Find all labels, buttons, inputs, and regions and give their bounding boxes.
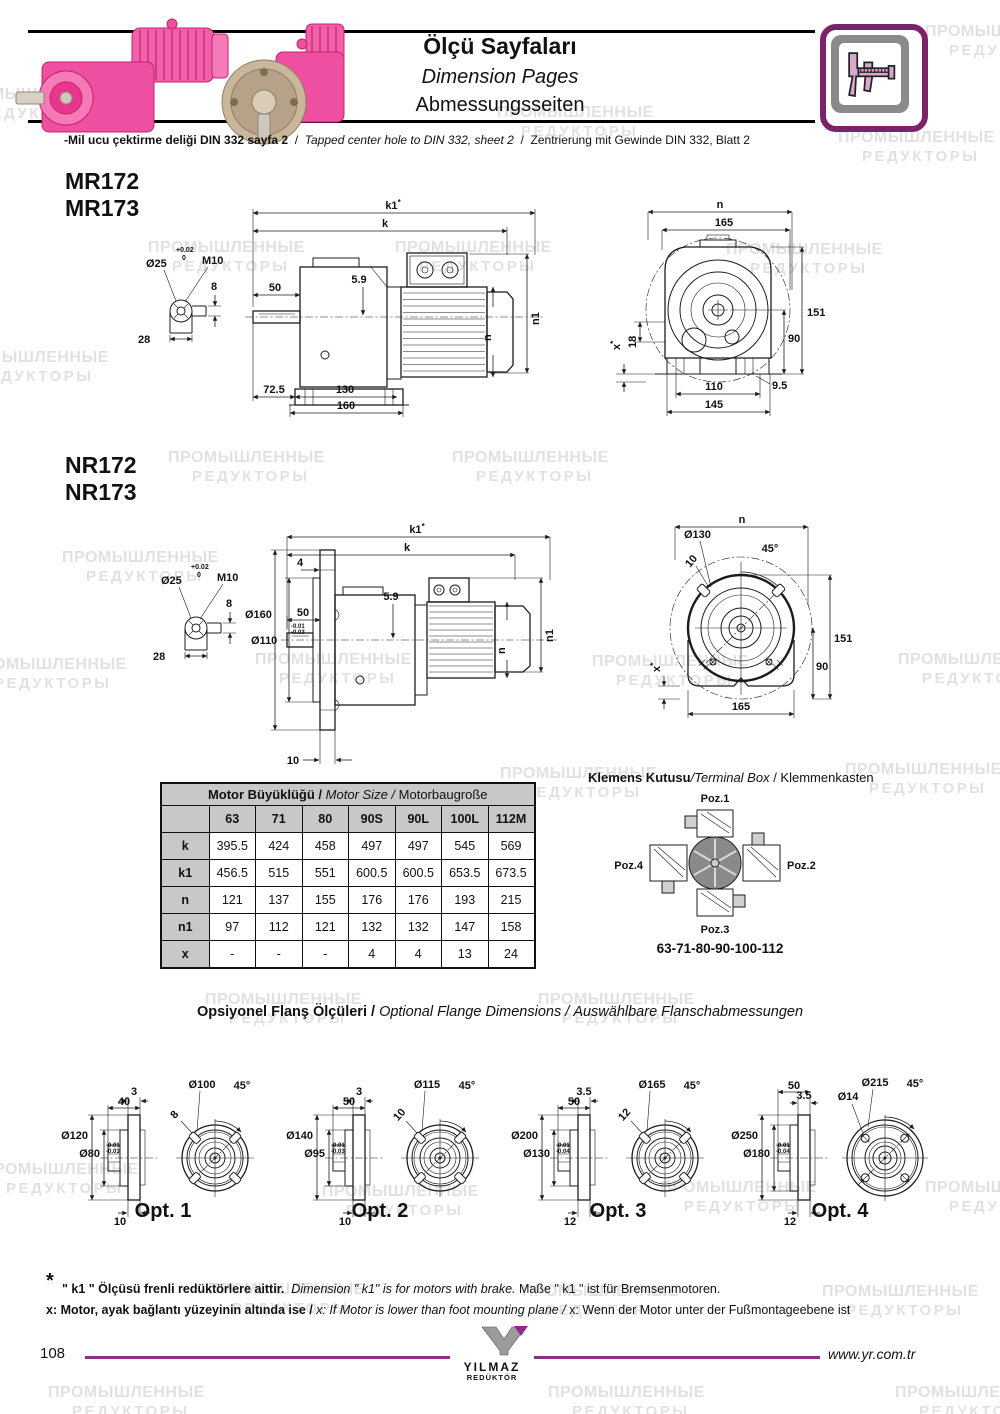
svg-text:165: 165 — [715, 217, 733, 229]
svg-text:+0.02: +0.02 — [191, 564, 209, 571]
svg-text:8: 8 — [226, 598, 232, 610]
svg-text:M10: M10 — [202, 255, 223, 267]
watermark: ПРОМЫШЛЕННЫЕРЕДУКТОРЫ — [0, 348, 109, 386]
watermark: ПРОМЫШЛЕННЫЕРЕДУКТОРЫ — [838, 128, 995, 166]
svg-text:151: 151 — [807, 307, 825, 319]
svg-text:50: 50 — [297, 607, 309, 619]
col-90l: 90L — [395, 806, 442, 833]
svg-text:-0.04: -0.04 — [556, 1149, 570, 1155]
caliper-icon — [820, 24, 928, 132]
svg-text:Poz.2: Poz.2 — [787, 860, 816, 872]
footer-rule-left — [85, 1356, 450, 1359]
svg-text:3: 3 — [356, 1086, 362, 1098]
svg-text:Ø25: Ø25 — [161, 575, 182, 587]
col-80: 80 — [302, 806, 349, 833]
svg-text:18: 18 — [627, 336, 639, 348]
svg-text:n1: n1 — [544, 629, 556, 642]
svg-text:M10: M10 — [217, 572, 238, 584]
svg-text:-0.03: -0.03 — [291, 630, 305, 636]
svg-text:45°: 45° — [234, 1080, 251, 1092]
svg-text:Ø95: Ø95 — [304, 1148, 325, 1160]
svg-text:90: 90 — [816, 661, 828, 673]
svg-text:Ø80: Ø80 — [79, 1148, 100, 1160]
svg-text:x*: x* — [649, 662, 663, 672]
model-nr173: NR173 — [65, 479, 137, 506]
svg-text:10: 10 — [683, 553, 700, 570]
mr-side-view: k1* k 50 5.9 n1 n 72.5 130 — [245, 195, 545, 445]
svg-text:x*: x* — [609, 340, 623, 350]
logo-sub: REDÜKTÖR — [452, 1373, 532, 1382]
svg-text:k: k — [382, 218, 389, 230]
svg-text:50: 50 — [269, 282, 281, 294]
watermark: ПРОМЫШЛЕННЫЕРЕДУКТОРЫ — [898, 650, 1000, 688]
svg-text:165: 165 — [732, 701, 750, 713]
page-number: 108 — [40, 1345, 65, 1362]
footnote-k1: " k1 " Ölçüsü frenli redüktörlere aittir… — [62, 1282, 720, 1296]
svg-text:k1*: k1* — [409, 522, 425, 536]
yilmaz-logo-icon — [476, 1326, 532, 1356]
svg-text:10: 10 — [391, 1106, 408, 1123]
svg-text:-0.03: -0.03 — [106, 1149, 120, 1155]
svg-text:Poz.1: Poz.1 — [701, 793, 730, 805]
svg-text:45°: 45° — [684, 1080, 701, 1092]
svg-text:Poz.3: Poz.3 — [701, 924, 730, 936]
svg-text:k1*: k1* — [385, 198, 401, 212]
catalog-page: ПРОМЫШЛЕННЫЕРЕДУКТОРЫ ПРОМЫШЛЕННЫЕРЕДУКТ… — [0, 0, 1000, 1414]
svg-text:n: n — [717, 199, 724, 211]
svg-text:n: n — [739, 514, 746, 526]
caliper-icon-bg — [839, 43, 901, 105]
svg-text:28: 28 — [138, 334, 150, 346]
page-title: Ölçü Sayfaları Dimension Pages Abmessung… — [330, 33, 670, 117]
col-90s: 90S — [349, 806, 396, 833]
model-mr172: MR172 — [65, 168, 139, 195]
col-71: 71 — [256, 806, 303, 833]
table-row: k1 456.5515551600.5600.5653.5673.5 — [161, 860, 535, 887]
din-note-en: Tapped center hole to DIN 332, sheet 2 — [305, 133, 514, 147]
svg-text:130: 130 — [336, 384, 354, 396]
table-header-row: 63 71 80 90S 90L 100L 112M — [161, 806, 535, 833]
watermark: ПРОМЫШЛЕННЫЕРЕДУКТОРЫ — [925, 22, 1000, 60]
svg-text:Ø130: Ø130 — [523, 1148, 550, 1160]
svg-text:Ø130: Ø130 — [684, 529, 711, 541]
nr-side-view: k1* k 4 Ø160 Ø110 -0.01 -0.03 50 5.9 — [245, 520, 565, 775]
svg-text:n: n — [482, 334, 494, 341]
flange-section-title: Opsiyonel Flanş Ölçüleri / Optional Flan… — [0, 1004, 1000, 1020]
svg-text:50: 50 — [568, 1096, 580, 1108]
title-turkish: Ölçü Sayfaları — [330, 33, 670, 60]
watermark: ПРОМЫШЛЕННЫЕРЕДУКТОРЫ — [548, 1383, 705, 1414]
svg-text:0: 0 — [182, 255, 186, 262]
mr-models: MR172 MR173 — [65, 168, 139, 222]
svg-text:8: 8 — [168, 1109, 181, 1122]
svg-text:Ø250: Ø250 — [731, 1130, 758, 1142]
opt4-label: Opt. 4 — [780, 1200, 900, 1223]
gearmotor-image — [14, 10, 344, 142]
terminal-box-sizes: 63-71-80-90-100-112 — [615, 941, 825, 956]
mr-rear-view: n 165 151 90 18 x* 9.5 — [610, 190, 860, 440]
nr-models: NR172 NR173 — [65, 452, 137, 506]
svg-text:28: 28 — [153, 651, 165, 663]
svg-text:45°: 45° — [907, 1078, 924, 1090]
svg-text:k: k — [404, 542, 411, 554]
svg-text:Ø25: Ø25 — [146, 258, 167, 270]
din-note: -Mil ucu çektirme deliği DIN 332 sayfa 2… — [64, 133, 750, 147]
din-note-tr: -Mil ucu çektirme deliği DIN 332 sayfa 2 — [64, 133, 288, 147]
svg-text:5.9: 5.9 — [351, 274, 366, 286]
col-112m: 112M — [488, 806, 535, 833]
svg-text:Ø165: Ø165 — [639, 1079, 666, 1091]
caliper-glyph — [841, 45, 899, 103]
din-note-de: Zentrierung mit Gewinde DIN 332, Blatt 2 — [531, 133, 750, 147]
motor-size-table: Motor Büyüklüğü / Motor Size / Motorbaug… — [160, 782, 536, 969]
svg-text:90: 90 — [788, 333, 800, 345]
svg-text:10: 10 — [287, 755, 299, 767]
caliper-icon-frame — [831, 35, 909, 113]
svg-text:3: 3 — [131, 1086, 137, 1098]
svg-text:Ø140: Ø140 — [286, 1130, 313, 1142]
footnote-x: x: Motor, ayak bağlantı yüzeyinin altınd… — [46, 1303, 850, 1317]
svg-text:Ø100: Ø100 — [189, 1079, 216, 1091]
svg-text:145: 145 — [705, 399, 723, 411]
model-mr173: MR173 — [65, 195, 139, 222]
svg-text:9.5: 9.5 — [772, 380, 787, 392]
svg-text:Ø215: Ø215 — [862, 1077, 889, 1089]
svg-text:Poz.4: Poz.4 — [614, 860, 644, 872]
svg-text:Ø120: Ø120 — [61, 1130, 88, 1142]
table-row: x ---441324 — [161, 941, 535, 969]
title-german: Abmessungsseiten — [330, 94, 670, 117]
svg-text:3.5: 3.5 — [796, 1090, 811, 1102]
svg-text:-0.03: -0.03 — [331, 1149, 345, 1155]
opt1-label: Opt. 1 — [103, 1200, 223, 1223]
watermark: ПРОМЫШЛЕННЫЕРЕДУКТОРЫ — [0, 655, 127, 693]
watermark: ПРОМЫШЛЕННЫЕРЕДУКТОРЫ — [452, 448, 609, 486]
svg-text:110: 110 — [705, 381, 723, 393]
footnote-star: * — [46, 1270, 54, 1293]
svg-text:Ø14: Ø14 — [838, 1091, 860, 1103]
terminal-box-diagram: Poz.1 Poz.2 Poz.3 Poz.4 — [615, 790, 825, 940]
watermark: ПРОМЫШЛЕННЫЕРЕДУКТОРЫ — [895, 1383, 1000, 1414]
watermark: ПРОМЫШЛЕННЫЕРЕДУКТОРЫ — [925, 1178, 1000, 1216]
yilmaz-logo: YILMAZ REDÜKTÖR — [452, 1326, 532, 1382]
table-row: n 121137155176176193215 — [161, 887, 535, 914]
svg-text:5.9: 5.9 — [383, 591, 398, 603]
terminal-box-title: Klemens Kutusu/Terminal Box / Klemmenkas… — [588, 770, 874, 785]
col-100l: 100L — [442, 806, 489, 833]
svg-text:72.5: 72.5 — [263, 384, 284, 396]
model-nr172: NR172 — [65, 452, 137, 479]
svg-text:n1: n1 — [530, 312, 542, 325]
svg-text:4: 4 — [297, 557, 304, 569]
svg-text:50: 50 — [343, 1096, 355, 1108]
svg-text:45°: 45° — [459, 1080, 476, 1092]
watermark: ПРОМЫШЛЕННЫЕРЕДУКТОРЫ — [48, 1383, 205, 1414]
svg-text:160: 160 — [337, 400, 355, 412]
title-english: Dimension Pages — [330, 66, 670, 89]
table-title: Motor Büyüklüğü / Motor Size / Motorbaug… — [161, 783, 535, 806]
svg-text:0: 0 — [197, 572, 201, 579]
watermark: ПРОМЫШЛЕННЫЕРЕДУКТОРЫ — [168, 448, 325, 486]
footer-rule-right — [534, 1356, 820, 1359]
svg-text:8: 8 — [211, 281, 217, 293]
svg-text:40: 40 — [118, 1096, 130, 1108]
svg-text:Ø200: Ø200 — [511, 1130, 538, 1142]
table-row: k 395.5424458497497545569 — [161, 833, 535, 860]
svg-text:Ø160: Ø160 — [245, 609, 272, 621]
logo-name: YILMAZ — [452, 1361, 532, 1373]
svg-text:Ø110: Ø110 — [251, 635, 277, 647]
svg-text:Ø180: Ø180 — [743, 1148, 770, 1160]
website-link[interactable]: www.yr.com.tr — [828, 1346, 915, 1362]
opt3-label: Opt. 3 — [558, 1200, 678, 1223]
col-63: 63 — [209, 806, 256, 833]
table-row: n1 97112121132132147158 — [161, 914, 535, 941]
svg-text:151: 151 — [834, 633, 852, 645]
svg-text:n: n — [496, 647, 508, 654]
svg-text:12: 12 — [616, 1106, 633, 1123]
svg-text:Ø115: Ø115 — [414, 1079, 440, 1091]
svg-text:45°: 45° — [762, 543, 779, 555]
opt2-label: Opt. 2 — [320, 1200, 440, 1223]
svg-text:+0.02: +0.02 — [176, 247, 194, 254]
nr-rear-view: n Ø130 10 45° 151 90 x* 165 — [650, 510, 860, 745]
svg-text:-0.04: -0.04 — [776, 1149, 790, 1155]
